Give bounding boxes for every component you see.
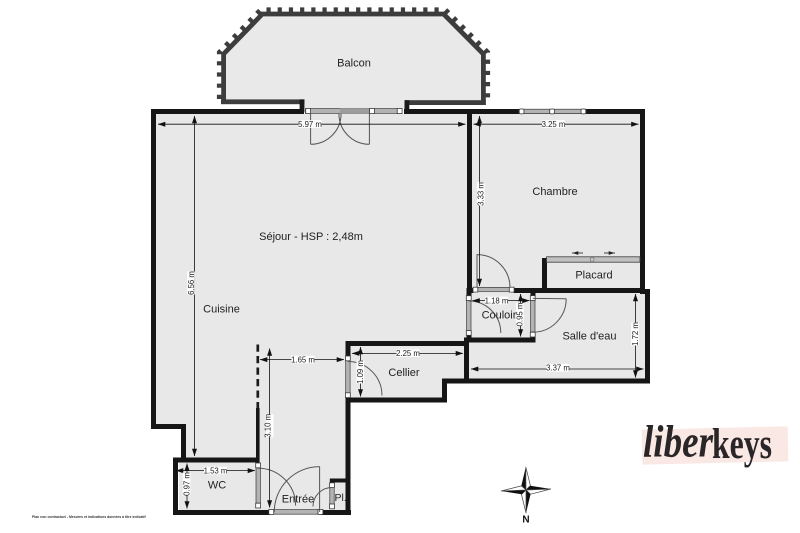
svg-text:Placard: Placard [575, 270, 612, 282]
svg-text:3.25 m: 3.25 m [542, 120, 566, 129]
svg-text:Pl.: Pl. [334, 492, 346, 504]
svg-text:1.18 m: 1.18 m [485, 296, 509, 305]
svg-text:3.33 m: 3.33 m [477, 182, 486, 206]
svg-text:1.72 m: 1.72 m [631, 322, 640, 346]
svg-text:Couloir: Couloir [482, 309, 517, 321]
svg-text:Cellier: Cellier [388, 367, 420, 379]
svg-text:N: N [522, 515, 529, 526]
svg-text:2.25 m: 2.25 m [396, 349, 420, 358]
svg-text:5.97 m: 5.97 m [298, 120, 322, 129]
svg-text:Balcon: Balcon [337, 57, 371, 69]
svg-text:1.53 m: 1.53 m [204, 466, 228, 475]
svg-text:keys: keys [712, 421, 772, 468]
svg-text:1.09 m: 1.09 m [356, 360, 365, 384]
svg-text:Entrée: Entrée [282, 493, 314, 505]
svg-text:0.95 m: 0.95 m [516, 303, 525, 327]
svg-text:0.97 m: 0.97 m [182, 472, 191, 496]
svg-text:WC: WC [208, 479, 226, 491]
svg-text:6.56 m: 6.56 m [187, 271, 196, 295]
svg-text:1.65 m: 1.65 m [291, 355, 315, 364]
svg-text:Séjour - HSP : 2,48m: Séjour - HSP : 2,48m [259, 231, 363, 243]
svg-text:Cuisine: Cuisine [203, 304, 240, 316]
svg-text:liber: liber [643, 416, 714, 467]
svg-text:Salle d'eau: Salle d'eau [562, 330, 616, 342]
svg-text:3.10 m: 3.10 m [264, 414, 273, 438]
svg-text:3.37 m: 3.37 m [546, 364, 570, 373]
svg-text:Plan non contractuel - Mesures: Plan non contractuel - Mesures et indica… [32, 515, 147, 519]
svg-text:Chambre: Chambre [532, 186, 577, 198]
